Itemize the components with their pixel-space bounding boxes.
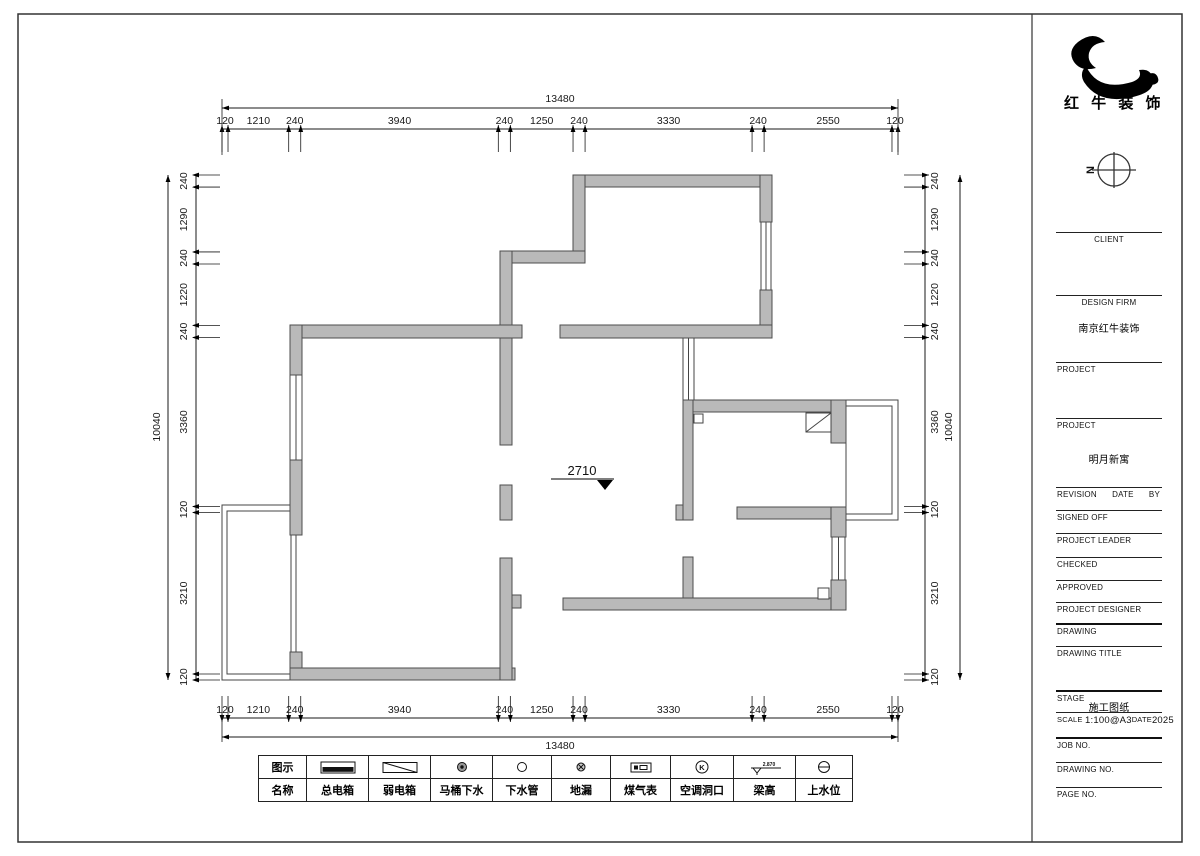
title-block-label: PAGE NO.: [1057, 790, 1097, 799]
wall-segment: [573, 175, 585, 263]
wall-segment: [683, 400, 693, 520]
level-mark-value: 2710: [568, 463, 597, 478]
title-block-label: DRAWING: [1057, 627, 1097, 636]
wall-segment: [500, 251, 585, 263]
balcony-window-wall: [846, 400, 898, 520]
balcony-window-wall: [227, 511, 291, 674]
dim-label: 240: [496, 704, 514, 716]
wall-segment: [563, 598, 846, 610]
wall-segment: [683, 400, 846, 412]
dim-label: 240: [929, 249, 941, 267]
title-block-row-stage: STAGE施工图纸: [1056, 690, 1162, 714]
dim-label: 3210: [178, 581, 190, 605]
legend-item-label: 煤气表: [611, 779, 671, 802]
dim-label: 1290: [929, 208, 941, 232]
svg-text:2.870: 2.870: [762, 762, 775, 768]
legend-header-names: 名称: [259, 779, 307, 802]
wall-segment: [831, 580, 846, 610]
dim-label: 240: [286, 704, 304, 716]
dim-label: 3210: [929, 581, 941, 605]
dim-label: 10040: [943, 412, 955, 441]
balcony-walls: [222, 400, 898, 680]
wall-segment: [512, 595, 521, 608]
fixture-symbol: [818, 588, 829, 599]
wall-segment: [500, 485, 512, 520]
wall-segment: [573, 175, 772, 187]
dim-label: 120: [178, 668, 190, 686]
title-block-row-page-no: PAGE NO.: [1056, 787, 1162, 843]
door-and-fixture-symbols: [694, 413, 831, 599]
dim-label: 1250: [530, 115, 554, 127]
title-block-label: SIGNED OFF: [1057, 513, 1108, 522]
title-block-row-checked: CHECKED: [1056, 557, 1162, 581]
dim-label: 120: [216, 704, 234, 716]
legend-item-label: 梁高: [734, 779, 796, 802]
title-block-label: PROJECT LEADER: [1057, 536, 1131, 545]
dim-label: 240: [929, 323, 941, 341]
title-block-label: BY: [1149, 490, 1160, 499]
legend-item-label: 弱电箱: [369, 779, 431, 802]
wall-segment: [831, 507, 846, 537]
dim-arrow: [166, 175, 171, 182]
dim-label: 120: [178, 501, 190, 519]
drain-pipe-icon: [493, 756, 552, 779]
title-block-label: DRAWING NO.: [1057, 765, 1114, 774]
main-electric-box-icon: [307, 756, 369, 779]
balcony-window-wall: [846, 406, 892, 514]
dim-label: 120: [929, 501, 941, 519]
wall-segment: [500, 251, 512, 445]
wall-segment: [760, 175, 772, 222]
dim-label: 13480: [545, 93, 574, 105]
title-block-label: JOB NO.: [1057, 741, 1090, 750]
dim-label: 240: [178, 172, 190, 190]
wall-segment: [500, 558, 512, 680]
title-block-row-job-no: JOB NO.: [1056, 737, 1162, 764]
legend-table: 图示K2.870名称总电箱弱电箱马桶下水下水管地漏煤气表空调洞口梁高上水位: [258, 755, 853, 802]
title-block-row-approved: APPROVED: [1056, 580, 1162, 603]
dim-label: 240: [496, 115, 514, 127]
legend-item-label: 下水管: [493, 779, 552, 802]
dim-label: 3330: [657, 115, 681, 127]
ac-opening-icon: K: [671, 756, 734, 779]
legend-item-label: 马桶下水: [431, 779, 493, 802]
dim-label: 240: [286, 115, 304, 127]
title-block: CLIENTDESIGN FIRM南京红牛装饰PROJECTPROJECT明月新…: [1056, 14, 1162, 842]
dim-label: 3360: [178, 410, 190, 434]
title-block-label: DRAWING TITLE: [1057, 649, 1122, 658]
title-block-row-drawing-no: DRAWING NO.: [1056, 762, 1162, 788]
title-block-label: CHECKED: [1057, 560, 1098, 569]
wall-segment: [290, 460, 302, 535]
title-block-row-project-2: PROJECT明月新寓: [1056, 418, 1162, 488]
title-block-label: PROJECT: [1057, 421, 1096, 430]
wall-segment: [831, 400, 846, 443]
wall-segment: [290, 325, 302, 375]
title-block-row-client: CLIENT: [1056, 232, 1162, 296]
legend-header-icons: 图示: [259, 756, 307, 779]
title-block-row-drawing: DRAWING: [1056, 623, 1162, 648]
dim-label: 240: [570, 704, 588, 716]
dim-label: 2550: [816, 704, 840, 716]
title-block-label: PROJECT DESIGNER: [1057, 605, 1141, 614]
title-block-row-drawing-title: DRAWING TITLE: [1056, 646, 1162, 691]
dim-label: 120: [886, 704, 904, 716]
dim-arrow: [222, 106, 229, 111]
dim-label: 120: [929, 668, 941, 686]
dim-label: 1220: [178, 283, 190, 307]
gas-meter-icon: [611, 756, 671, 779]
title-block-label: PROJECT: [1057, 365, 1096, 374]
dim-arrow: [166, 673, 171, 680]
scale-date-row: SCALE 1:100@A3DATE2025: [1057, 715, 1174, 726]
drawing-sheet: 红 牛 装 饰 N 2710 1201210240394024012502403…: [0, 0, 1200, 856]
title-block-row-project-leader: PROJECT LEADER: [1056, 533, 1162, 558]
legend-item-label: 上水位: [796, 779, 853, 802]
title-block-row-signed-off: SIGNED OFF: [1056, 510, 1162, 534]
svg-text:K: K: [699, 763, 705, 772]
title-block-label: DESIGN FIRM: [1056, 298, 1162, 307]
title-block-label: CLIENT: [1056, 235, 1162, 244]
legend-item-label: 空调洞口: [671, 779, 734, 802]
title-block-value: 南京红牛装饰: [1056, 320, 1162, 335]
weak-electric-box-icon: [369, 756, 431, 779]
dim-arrow: [222, 735, 229, 740]
dim-arrow: [958, 673, 963, 680]
fixture-symbol: [694, 414, 703, 423]
dim-label: 240: [929, 172, 941, 190]
dim-label: 3330: [657, 704, 681, 716]
legend-item-label: 总电箱: [307, 779, 369, 802]
level-mark: 2710: [551, 463, 614, 490]
dim-label: 120: [886, 115, 904, 127]
dim-label: 13480: [545, 740, 574, 752]
title-block-value: 明月新寓: [1056, 451, 1162, 466]
legend-item-label: 地漏: [552, 779, 611, 802]
wall-segment: [290, 668, 515, 680]
dim-label: 240: [749, 115, 767, 127]
dim-label: 120: [216, 115, 234, 127]
water-supply-icon: [796, 756, 853, 779]
title-block-row-design-firm: DESIGN FIRM南京红牛装饰: [1056, 295, 1162, 363]
dim-label: 3940: [388, 115, 412, 127]
beam-height-icon: 2.870: [734, 756, 796, 779]
wall-segment: [560, 325, 772, 338]
wall-segment: [683, 557, 693, 598]
dim-label: 240: [749, 704, 767, 716]
wall-segment: [290, 325, 522, 338]
dim-label: 1210: [247, 115, 271, 127]
title-block-label: REVISION: [1057, 490, 1097, 499]
dim-label: 1210: [247, 704, 271, 716]
title-block-row-project-designer: PROJECT DESIGNER: [1056, 602, 1162, 624]
title-block-label: APPROVED: [1057, 583, 1103, 592]
dim-label: 240: [570, 115, 588, 127]
dim-label: 3360: [929, 410, 941, 434]
dim-label: 10040: [151, 412, 163, 441]
dim-arrow: [958, 175, 963, 182]
balcony-window-wall: [222, 505, 296, 680]
wall-segment: [737, 507, 846, 519]
dim-label: 240: [178, 249, 190, 267]
title-block-row-scale: SCALE 1:100@A3DATE2025: [1056, 712, 1162, 738]
wall-segment: [676, 505, 683, 520]
dim-label: 240: [178, 323, 190, 341]
toilet-drain-icon: [431, 756, 493, 779]
dim-label: 1220: [929, 283, 941, 307]
dim-arrow: [891, 735, 898, 740]
dim-arrow: [891, 106, 898, 111]
title-block-label: DATE: [1112, 490, 1134, 499]
dim-label: 3940: [388, 704, 412, 716]
dim-label: 1250: [530, 704, 554, 716]
dim-label: 2550: [816, 115, 840, 127]
title-block-row-project-1: PROJECT: [1056, 362, 1162, 419]
title-block-row-revision: REVISIONDATEBY: [1056, 487, 1162, 511]
floor-drain-icon: [552, 756, 611, 779]
dim-label: 1290: [178, 208, 190, 232]
